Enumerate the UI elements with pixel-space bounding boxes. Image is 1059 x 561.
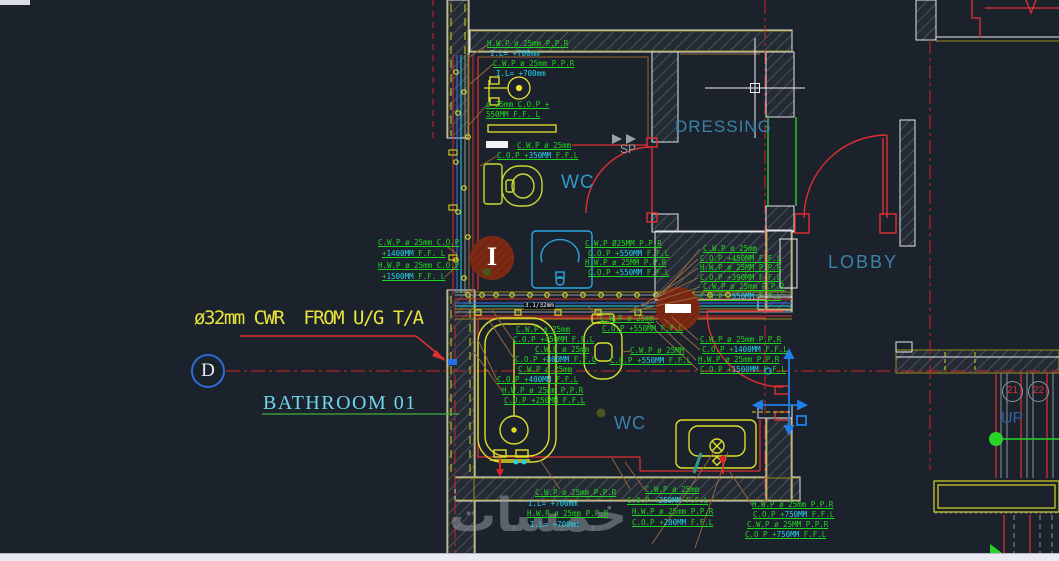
floor-dot xyxy=(597,409,606,418)
cad-drawing xyxy=(0,0,1059,561)
pipe-annotation: C.O.P +350MM F.F.L xyxy=(497,152,578,160)
wall xyxy=(900,120,915,246)
bathtub-valves xyxy=(496,458,527,477)
pipe-annotation: C.O.P +400MM F.F.L xyxy=(497,376,578,384)
sp-marker-label: SP xyxy=(620,143,636,155)
basin-wc-top xyxy=(532,231,592,288)
pipe-annotation: I.L= +700mm xyxy=(528,500,578,508)
room-label-dressing: DRESSING xyxy=(675,118,772,135)
pipe-annotation: C.W.P ø 25mm xyxy=(518,366,572,374)
pipe-annotation: ø 25mm C.O.P + xyxy=(486,101,549,109)
room-label-wc-bottom: WC xyxy=(614,414,646,432)
wall xyxy=(766,206,794,232)
pipe-annotation: C.O.P +450MM F.F.L xyxy=(700,255,781,263)
supply-note-text: ø32mm CWR FROM U/G T/A xyxy=(194,309,423,328)
pipe-annotation: +1400MM F.F. L xyxy=(382,250,445,258)
pipe-annotation: C.W.P ø 25mm P.P.R xyxy=(535,489,616,497)
pipe-annotation: I.L= +700mm xyxy=(490,50,540,58)
stair-up-label: UP xyxy=(1001,411,1023,427)
pipe-tag xyxy=(448,359,457,365)
pipe-annotation: C.W.P ø 25mm P.P.R xyxy=(703,283,784,291)
dimension-note: 3.1/32mm xyxy=(524,303,555,309)
lobby-opening-green xyxy=(768,117,796,206)
pipe-annotation: C.O.P +250MM F.F.L xyxy=(627,497,708,505)
cad-drawing-canvas[interactable]: ø32mm CWR FROM U/G T/A BATHROOM 01 WC DR… xyxy=(0,0,1059,561)
pipe-annotation: C.O.P +550MM F.F.L xyxy=(610,357,691,365)
wall xyxy=(766,52,794,117)
pipe-annotation: 550MM F.F. L xyxy=(486,111,540,119)
room-label-lobby: LOBBY xyxy=(828,253,898,271)
wall xyxy=(447,0,469,138)
sink-vanity xyxy=(676,420,756,468)
pipe-annotation: C.W.P ø 25mm xyxy=(516,326,570,334)
pipe-annotation: C.O.P +390MM F.F.L xyxy=(700,274,781,282)
wall xyxy=(916,0,936,40)
stair-arrow xyxy=(990,544,1002,553)
pipe-annotation: C.W.P ø 25mm xyxy=(517,142,571,150)
pipe-annotation: C.W.P ø 25MM P.P.R xyxy=(747,521,828,529)
pipe-annotation: H.W.P ø 25mm P.P.R xyxy=(527,510,608,518)
pipe-annotation: H.W.P ø 25mm P.P.R xyxy=(487,40,568,48)
pipe-annotation: C.W.P ø 25mm C.O.P xyxy=(378,239,459,247)
pipe-annotation: I.L= +700mm xyxy=(496,70,546,78)
grid-bubble-d: D xyxy=(191,354,225,388)
column-marker-label: I xyxy=(484,244,500,270)
pipe-annotation: H.W.P ø 25MM P.P.R xyxy=(585,259,666,267)
wall xyxy=(652,214,678,232)
grid-bubble-21: 21 xyxy=(1002,381,1023,402)
toilet-wc-top xyxy=(484,164,542,206)
pipe-annotation: C.O.P +800MM F.F.L xyxy=(515,356,596,364)
pipe-annotation: C.W.P Ø25MM P.P.R xyxy=(585,240,662,248)
screen-artifact xyxy=(0,0,30,5)
pipe-annotation: H.W.P ø 25mm P.P.R xyxy=(502,387,583,395)
pipe-annotation: C.W.P ø 25mm P.P.R xyxy=(493,60,574,68)
drain-marker xyxy=(486,141,508,148)
pipe-annotation: C.W.P ø 25MM xyxy=(630,347,684,355)
grid-bubble-22: 22 xyxy=(1028,381,1049,402)
pipe-annotation: C.W.P ø 25mm xyxy=(600,315,654,323)
door-dressing xyxy=(795,135,896,233)
stair-start-dot xyxy=(989,432,1003,446)
pipe-annotation: C.O.P +750MM F.F.L xyxy=(753,511,834,519)
window-edge xyxy=(0,553,1059,561)
pipe-annotation: C.O.P +550MM F.F.L xyxy=(700,293,781,301)
pipe-annotation: C.O.P +1400MM F.F.L xyxy=(702,346,788,354)
pipe-annotation: C.W.P ø 25mm xyxy=(703,245,757,253)
pipe-annotation: C.O.P +550MM F.F.L xyxy=(588,250,669,258)
pipe-annotation: H.W.P ø 25mm P.P.R xyxy=(752,501,833,509)
pipe-annotation: C.O P +750MM F.F.L xyxy=(745,531,826,539)
wall xyxy=(896,350,1059,373)
pipe-annotation: H.W.P ø 25mm P.P.R xyxy=(698,356,779,364)
pipe-annotation: C.W.P ø 25mm xyxy=(645,486,699,494)
blank-label xyxy=(665,304,691,313)
pipe-annotation: C.O.P +550MM F.F.L xyxy=(602,325,683,333)
pipe-annotation: H.W.P ø 25mm C.O.P xyxy=(378,262,459,270)
room-label-bathroom: BATHROOM 01 xyxy=(263,393,417,413)
pipe-annotation: H.W.P ø 25MM P.P.R xyxy=(700,264,781,272)
pipe-annotation: C.W.P ø 25mm P.P.R xyxy=(700,336,781,344)
pipe-annotation: H.W.P ø 25mm P.P.R xyxy=(632,508,713,516)
pipe-annotation: C.O.P +450MM F.F.L xyxy=(513,336,594,344)
pipe-annotation: C.O.P +550MM F.F.L xyxy=(588,269,669,277)
supply-leader xyxy=(240,336,457,365)
pipe-annotation: C.W.P ø 25mm xyxy=(535,346,589,354)
room-label-wc-top: WC xyxy=(561,173,595,192)
pipe-annotation: I.L= +700mm xyxy=(530,521,580,529)
pipe-annotation: C.O.P +250MM F.F.L xyxy=(504,397,585,405)
pipe-annotation: C.O.P +200MM F.F.L xyxy=(632,519,713,527)
pipe-annotation: +1500MM F.F. L xyxy=(382,273,445,281)
pipe-annotation: C.O.P +1500MM F.F.L xyxy=(700,366,786,374)
